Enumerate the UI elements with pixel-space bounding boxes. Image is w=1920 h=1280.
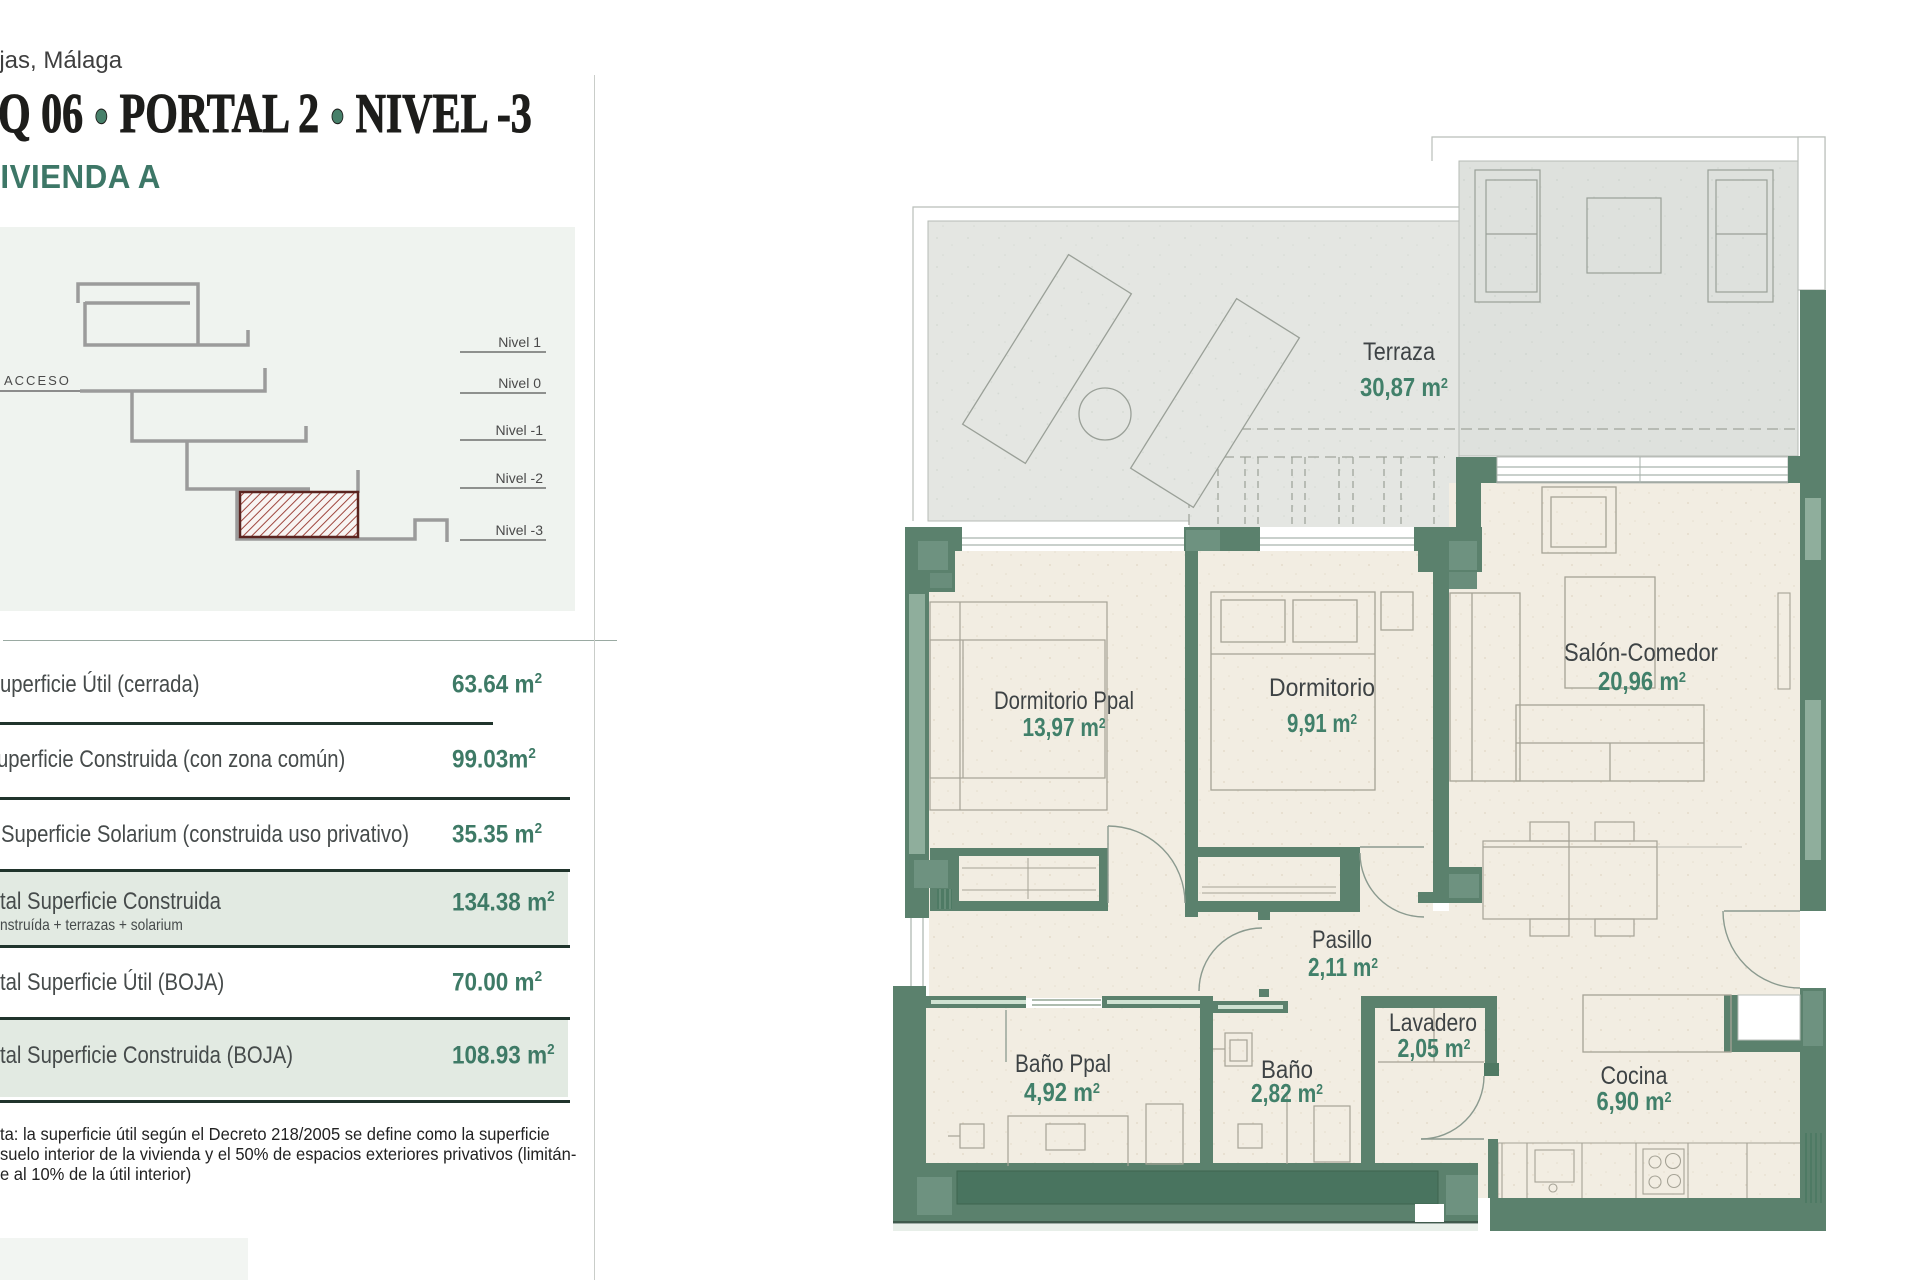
svg-text:Baño Ppal: Baño Ppal [1015, 1050, 1111, 1078]
svg-text:30,87 m2: 30,87 m2 [1360, 372, 1448, 402]
svg-text:13,97 m2: 13,97 m2 [1023, 712, 1106, 742]
svg-text:Pasillo: Pasillo [1312, 926, 1372, 954]
svg-text:20,96 m2: 20,96 m2 [1598, 666, 1686, 696]
svg-text:2,05 m2: 2,05 m2 [1398, 1033, 1471, 1063]
svg-text:4,92 m2: 4,92 m2 [1024, 1077, 1100, 1107]
svg-text:Nivel -2: Nivel -2 [496, 470, 544, 486]
svg-text:Nivel 1: Nivel 1 [498, 334, 541, 350]
svg-text:2,11 m2: 2,11 m2 [1308, 952, 1378, 982]
svg-text:Nivel -1: Nivel -1 [496, 422, 544, 438]
svg-text:Salón-Comedor: Salón-Comedor [1564, 639, 1718, 667]
svg-text:9,91 m2: 9,91 m2 [1287, 708, 1357, 738]
svg-text:6,90 m2: 6,90 m2 [1597, 1086, 1672, 1116]
svg-text:2,82 m2: 2,82 m2 [1251, 1078, 1323, 1108]
svg-text:Nivel 0: Nivel 0 [498, 375, 541, 391]
svg-text:ACCESO: ACCESO [4, 373, 71, 388]
svg-text:Dormitorio: Dormitorio [1269, 674, 1375, 702]
svg-text:Terraza: Terraza [1363, 338, 1435, 366]
svg-text:Nivel -3: Nivel -3 [496, 522, 544, 538]
svg-text:Dormitorio Ppal: Dormitorio Ppal [994, 687, 1134, 715]
